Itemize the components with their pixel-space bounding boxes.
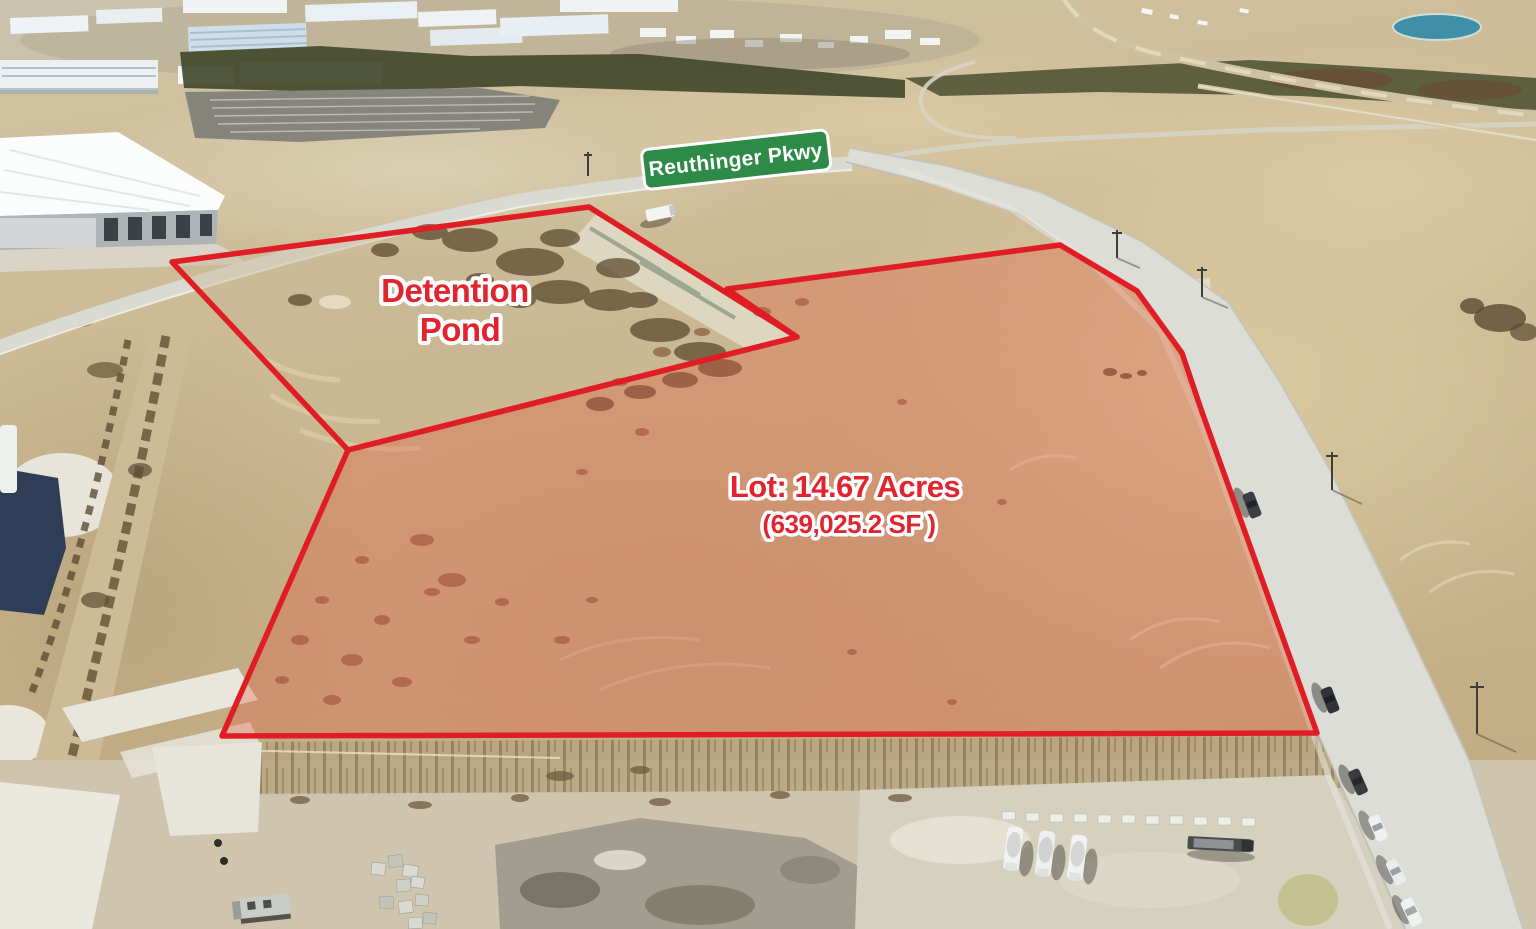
scene: Detention Pond Lot: 14.67 Acres (639,025… xyxy=(0,0,1536,929)
aerial-site-photo: Detention Pond Lot: 14.67 Acres (639,025… xyxy=(0,0,1536,929)
lot-label-line2: (639,025.2 SF ) xyxy=(762,509,935,539)
detention-pond-label-line1: Detention xyxy=(381,272,529,309)
distant-lake xyxy=(1393,14,1481,40)
detention-pond-label-line2: Pond xyxy=(420,311,500,348)
lot-label-line1: Lot: 14.67 Acres xyxy=(730,469,960,504)
